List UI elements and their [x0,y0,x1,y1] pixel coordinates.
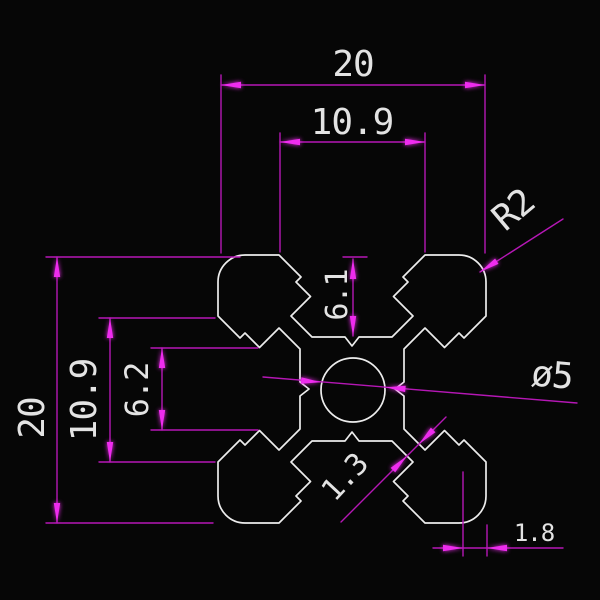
arrowhead [280,139,300,145]
dim-corner-radius: R2 [480,181,563,272]
dim-label-left-height: 20 [12,397,53,438]
dim-label-corner-radius: R2 [485,181,543,239]
dim-lip-wall: 1.8 [433,472,563,556]
arrowhead [107,318,113,338]
arrowhead [405,139,425,145]
dim-label-top-width: 20 [332,44,373,85]
dim-slot-depth: 6.1 [320,257,367,336]
technical-drawing: 20 10.9 20 10.9 6.2 [0,0,600,600]
cad-canvas: 20 10.9 20 10.9 6.2 [0,0,600,600]
arrowhead [159,410,165,430]
dim-top-width: 20 [221,44,485,253]
dim-label-left-slot-mouth: 10.9 [64,359,105,442]
dim-label-left-slot-throat: 6.2 [118,363,156,418]
arrowhead [301,377,321,383]
arrowhead [54,257,60,277]
arrowhead [386,386,406,392]
dim-label-top-slot-mouth: 10.9 [311,102,394,143]
dim-left-slot-throat: 6.2 [118,348,258,430]
dim-top-slot-mouth: 10.9 [280,102,425,252]
arrowhead [221,82,241,88]
center-bore-circle [321,358,385,422]
dim-center-bore: ø5 [263,353,577,403]
arrowhead [159,348,165,368]
dim-label-web-thickness: 1.3 [315,447,376,508]
arrowhead [487,545,507,551]
arrowhead [107,442,113,462]
arrowhead [465,82,485,88]
dim-label-slot-depth: 6.1 [320,269,355,320]
dim-web-thickness: 1.3 [315,417,446,522]
arrowhead [443,545,463,551]
dim-label-lip-wall: 1.8 [514,519,554,547]
arrowhead [54,503,60,523]
dim-label-center-bore: ø5 [530,353,575,397]
arrowhead [480,259,499,273]
